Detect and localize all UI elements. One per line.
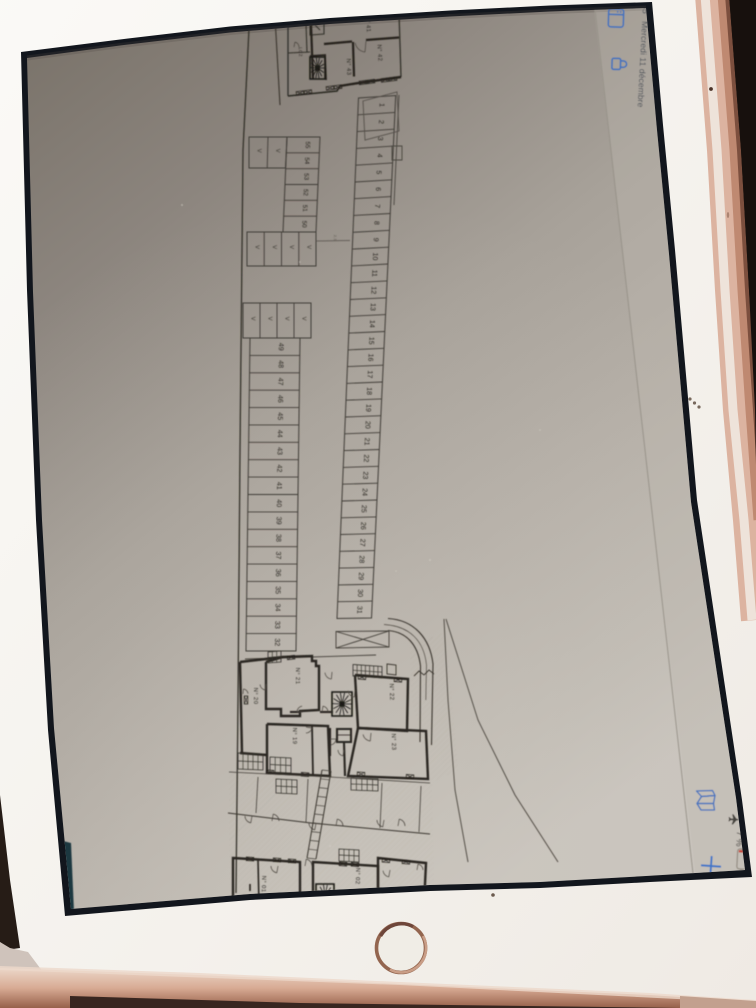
svg-text:5: 5: [375, 170, 382, 174]
svg-text:V: V: [256, 149, 262, 153]
svg-text:9: 9: [372, 238, 379, 242]
svg-text:2: 2: [377, 120, 384, 124]
svg-text:50: 50: [300, 221, 307, 229]
svg-text:33: 33: [273, 621, 280, 629]
svg-text:34: 34: [274, 604, 281, 612]
svg-text:37: 37: [274, 551, 281, 559]
svg-text:24: 24: [360, 488, 367, 496]
svg-text:V: V: [274, 149, 280, 153]
svg-text:36: 36: [274, 569, 281, 577]
svg-text:20: 20: [363, 421, 370, 429]
svg-text:19: 19: [364, 404, 371, 412]
svg-text:43: 43: [276, 447, 283, 455]
svg-text:38: 38: [274, 534, 281, 542]
svg-text:N° 02: N° 02: [354, 868, 361, 885]
svg-text:49: 49: [277, 343, 284, 351]
svg-text:16: 16: [366, 353, 373, 361]
svg-text:29: 29: [357, 572, 364, 580]
svg-text:V: V: [300, 317, 306, 321]
svg-text:53: 53: [302, 173, 309, 181]
svg-text:51: 51: [301, 205, 308, 213]
svg-text:23: 23: [361, 471, 368, 479]
svg-text:7: 7: [373, 204, 380, 208]
svg-text:46: 46: [276, 395, 283, 403]
svg-text:N° 20: N° 20: [252, 688, 258, 705]
svg-text:21: 21: [363, 438, 370, 446]
svg-text:LC2: LC2: [298, 47, 303, 57]
svg-text:1: 1: [378, 103, 385, 107]
svg-text:35: 35: [274, 586, 281, 594]
svg-text:12: 12: [369, 286, 376, 294]
svg-text:27: 27: [358, 539, 365, 547]
svg-text:N° 01: N° 01: [260, 876, 267, 893]
svg-text:25: 25: [360, 505, 367, 513]
svg-text:N° 19: N° 19: [291, 728, 297, 745]
svg-text:28: 28: [357, 555, 364, 563]
svg-text:V: V: [271, 245, 277, 249]
svg-text:V: V: [288, 245, 294, 249]
svg-text:N° 43: N° 43: [345, 58, 352, 75]
svg-text:18: 18: [365, 387, 372, 395]
svg-text:47: 47: [276, 378, 283, 386]
svg-text:V: V: [254, 245, 260, 249]
svg-text:15: 15: [367, 337, 374, 345]
svg-text:14: 14: [368, 320, 375, 328]
svg-text:N° 42: N° 42: [376, 44, 383, 61]
svg-text:10: 10: [371, 252, 378, 260]
svg-text:40: 40: [275, 499, 282, 507]
svg-text:V: V: [283, 317, 289, 321]
svg-text:26: 26: [359, 522, 366, 530]
svg-text:31: 31: [355, 606, 362, 614]
svg-text:V: V: [249, 317, 255, 321]
svg-text:41: 41: [275, 482, 282, 490]
svg-text:13: 13: [369, 303, 376, 311]
svg-text:6: 6: [374, 187, 381, 191]
svg-text:V: V: [266, 317, 272, 321]
svg-text:48: 48: [277, 360, 284, 368]
svg-text:4: 4: [375, 153, 382, 157]
svg-text:8: 8: [372, 221, 379, 225]
svg-text:44: 44: [276, 430, 283, 438]
svg-text:39: 39: [275, 517, 282, 525]
svg-text:11: 11: [370, 269, 377, 277]
svg-text:2,5: 2,5: [333, 235, 337, 241]
svg-text:30: 30: [356, 589, 363, 597]
svg-text:V: V: [305, 245, 311, 249]
svg-text:32: 32: [273, 638, 280, 646]
svg-text:52: 52: [302, 189, 309, 197]
svg-text:55: 55: [304, 141, 311, 149]
svg-text:N° 23: N° 23: [390, 733, 397, 750]
svg-text:22: 22: [362, 454, 369, 462]
svg-text:54: 54: [303, 157, 310, 165]
svg-text:45: 45: [276, 412, 283, 420]
svg-text:42: 42: [275, 464, 282, 472]
svg-text:N° 22: N° 22: [388, 683, 395, 700]
svg-text:N° 21: N° 21: [294, 668, 300, 685]
svg-text:17: 17: [366, 370, 373, 378]
